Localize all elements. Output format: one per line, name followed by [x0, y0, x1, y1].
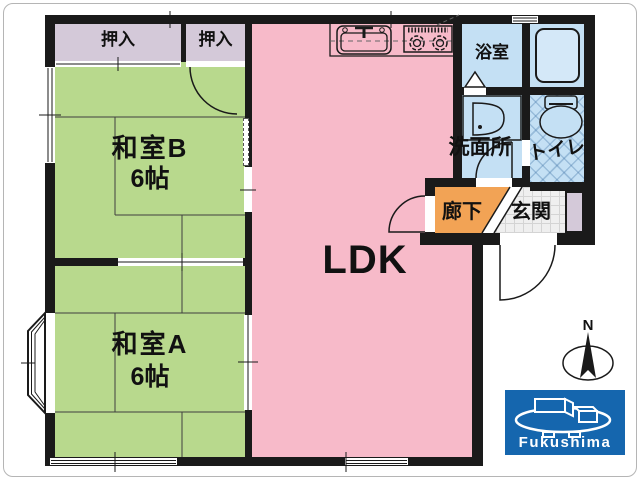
wall-ldk-right	[472, 233, 483, 466]
ldk-label: LDK	[295, 238, 435, 282]
company-logo: Fukushima	[505, 390, 625, 455]
entrance-door-opening	[500, 233, 557, 245]
floor-plan: 押入 押入 和室B 6帖 和室A 6帖 LDK 浴室 洗面所 トイレ 廊下 玄関…	[0, 0, 640, 480]
corridor-label: 廊下	[431, 201, 493, 223]
wall-toilet-bottom	[530, 182, 595, 191]
wall-right-upper	[584, 15, 595, 245]
window-washitsu-a-south	[50, 458, 177, 465]
entrance-label: 玄関	[496, 201, 566, 223]
ldk-area-upper	[252, 24, 453, 187]
compass-n-label: N	[576, 318, 600, 335]
bathtub-area	[530, 24, 584, 87]
entrance-door-arc	[500, 245, 555, 300]
bay-window-gap	[45, 313, 55, 413]
closet-1-label: 押入	[55, 31, 181, 50]
fusuma-a-ldk	[244, 315, 252, 410]
sliding-door-b-ldk	[244, 167, 252, 212]
logo-building-icon	[505, 390, 625, 438]
wall-bath-divider	[522, 24, 530, 87]
bay-window-icon	[21, 313, 45, 413]
window-bath-north	[512, 16, 538, 23]
washroom-label: 洗面所	[438, 136, 522, 159]
ldk-area-mid	[252, 187, 425, 233]
wall-bath-left	[453, 24, 462, 187]
washitsu-a-label: 和室A	[55, 330, 245, 359]
closet-2-door-opening	[186, 61, 245, 67]
washitsu-b-size: 6帖	[55, 166, 245, 194]
washitsu-b-label: 和室B	[55, 134, 245, 163]
window-washitsu-b	[45, 67, 55, 163]
washitsu-a-area	[55, 266, 245, 457]
window-ldk-south	[345, 458, 408, 465]
opening-a-b	[118, 258, 243, 266]
shoe-cabinet	[565, 191, 584, 233]
north-arrow-icon	[563, 332, 613, 380]
closet-2-label: 押入	[186, 31, 245, 50]
bath-door-opening	[464, 87, 486, 95]
washitsu-a-size: 6帖	[55, 364, 245, 392]
logo-text: Fukushima	[505, 434, 625, 451]
closet-1-sliding-door	[55, 61, 181, 67]
washroom-door-opening	[476, 178, 512, 187]
bath-label: 浴室	[462, 44, 522, 63]
